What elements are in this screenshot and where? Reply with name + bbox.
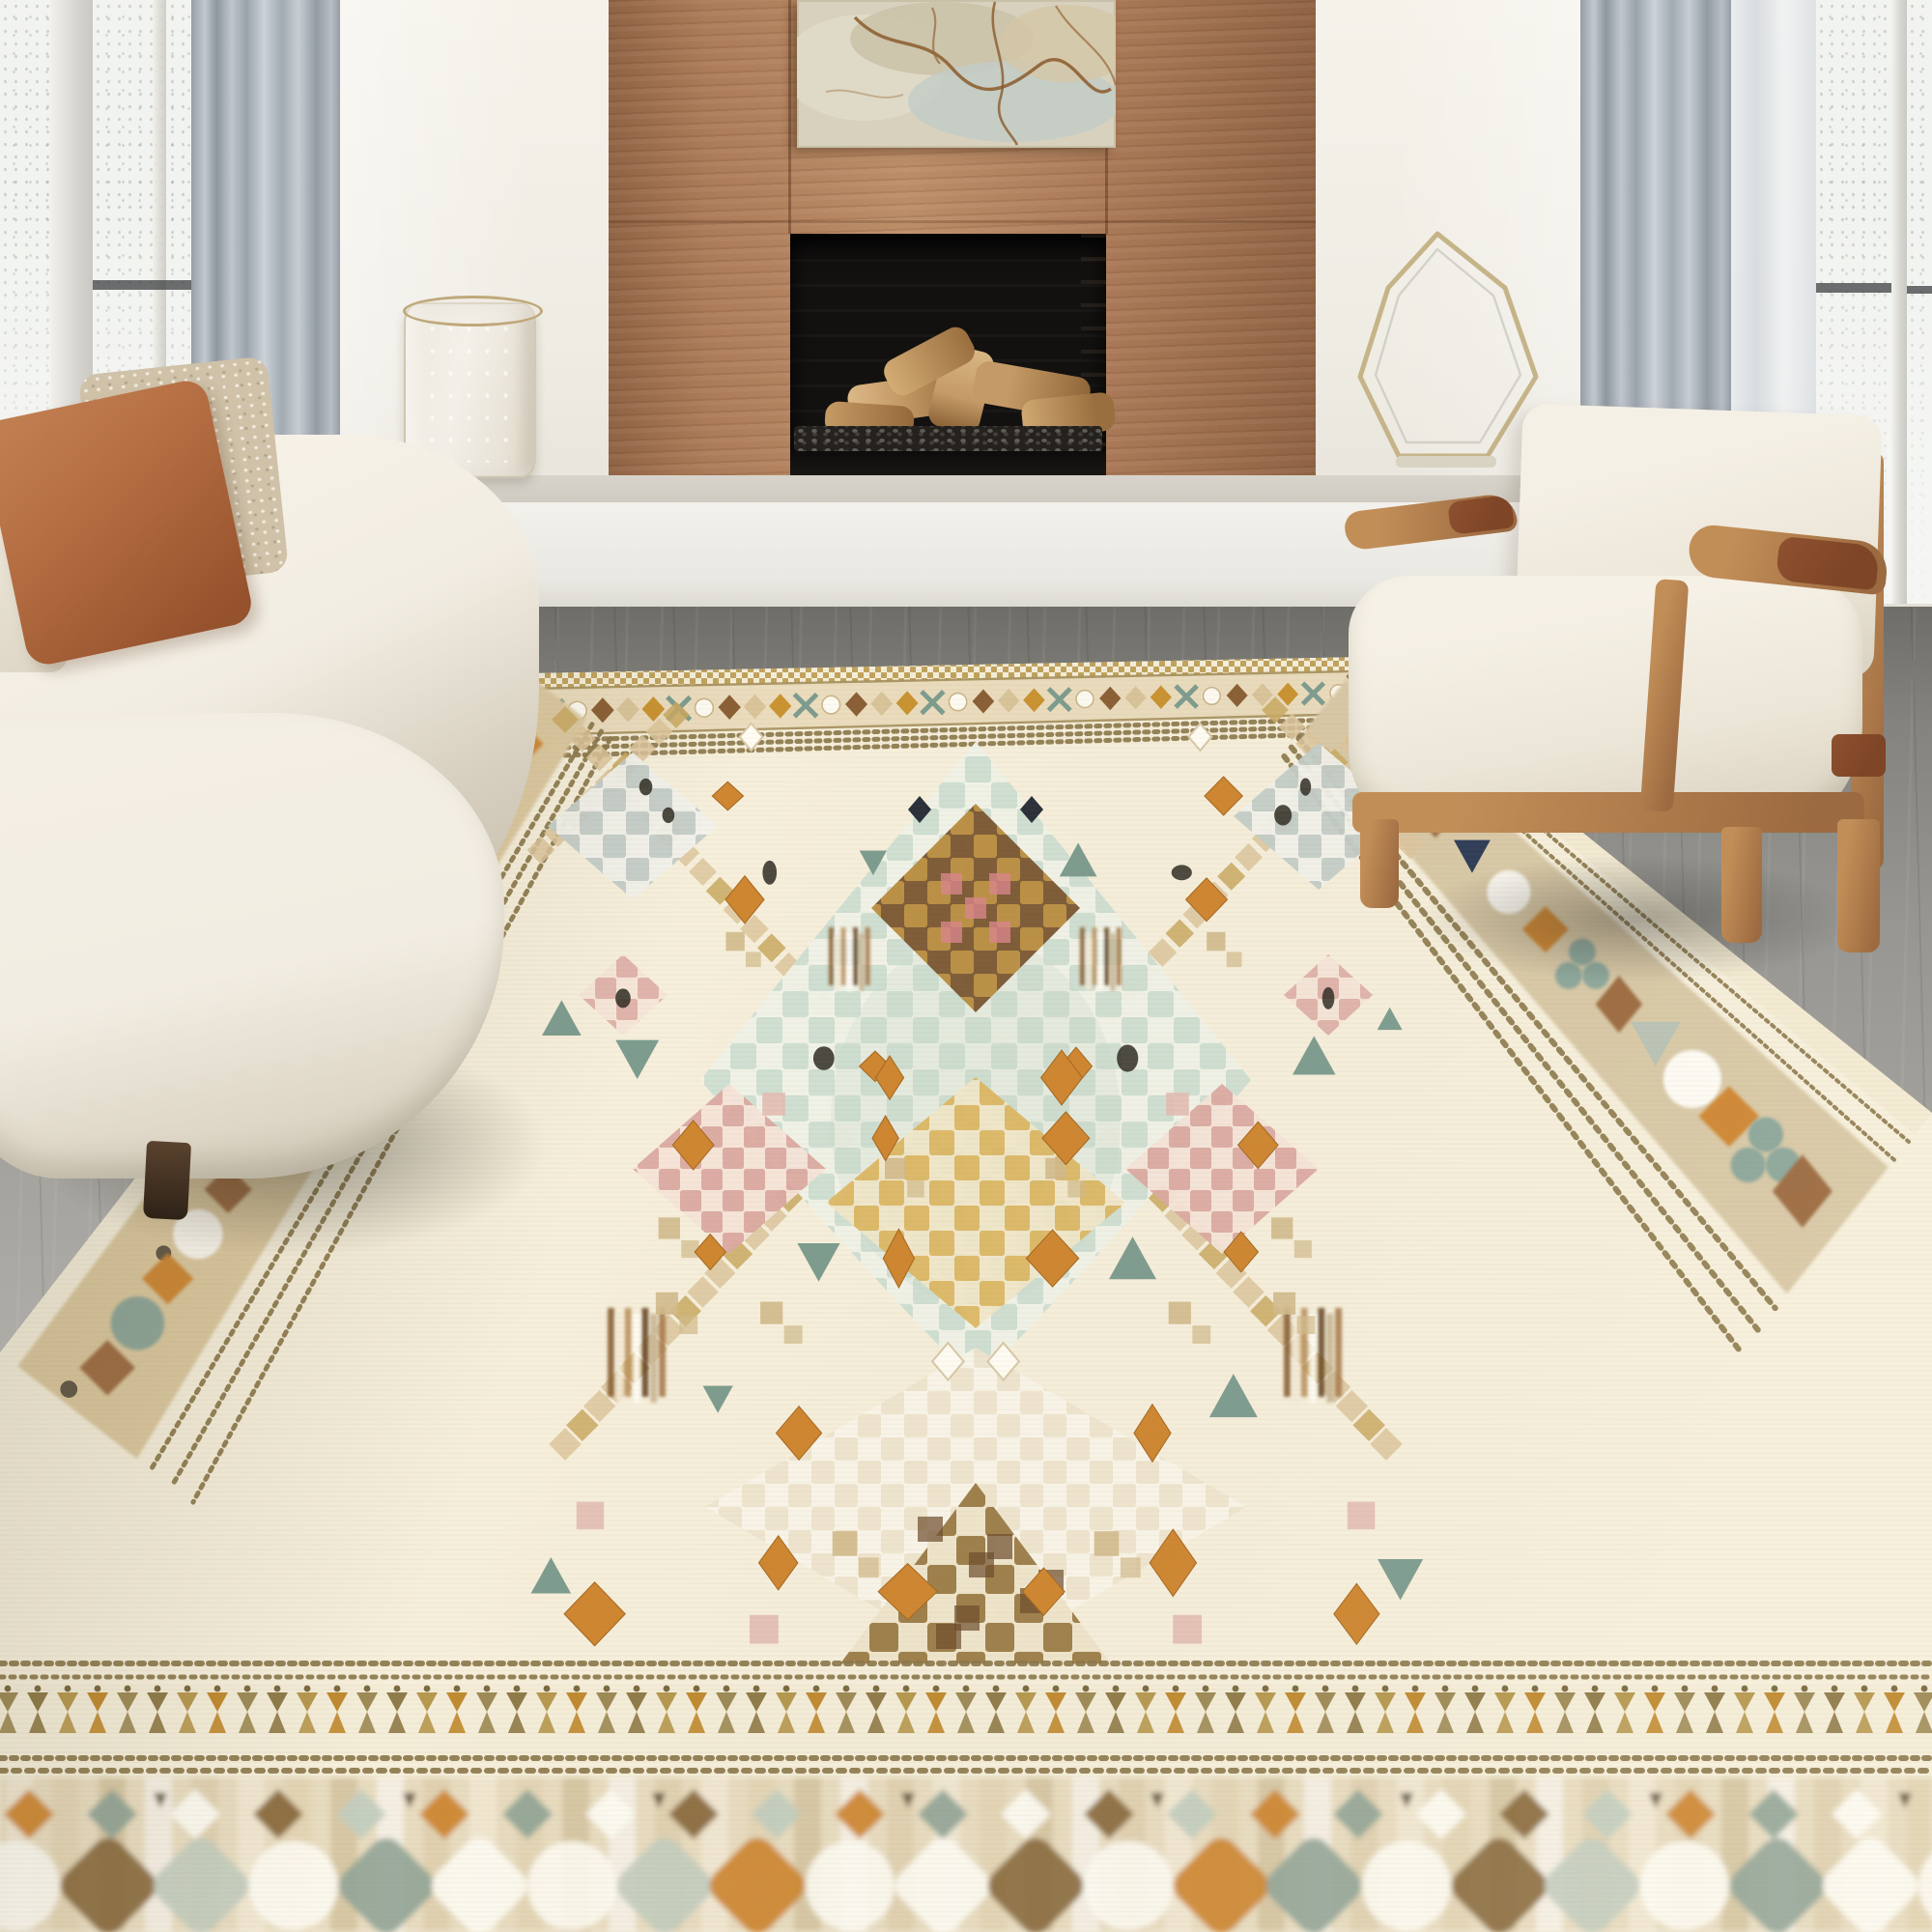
- armchair-base-rail: [1352, 792, 1864, 833]
- armchair-seat-cushion: [1349, 576, 1862, 829]
- sofa-leg: [143, 1141, 191, 1220]
- right-strap-leather: [1832, 734, 1886, 777]
- armchair-leg: [1360, 819, 1399, 908]
- armchair-leg: [1837, 819, 1880, 952]
- armchair-leg: [1721, 827, 1762, 943]
- living-room-photo: [0, 0, 1932, 1932]
